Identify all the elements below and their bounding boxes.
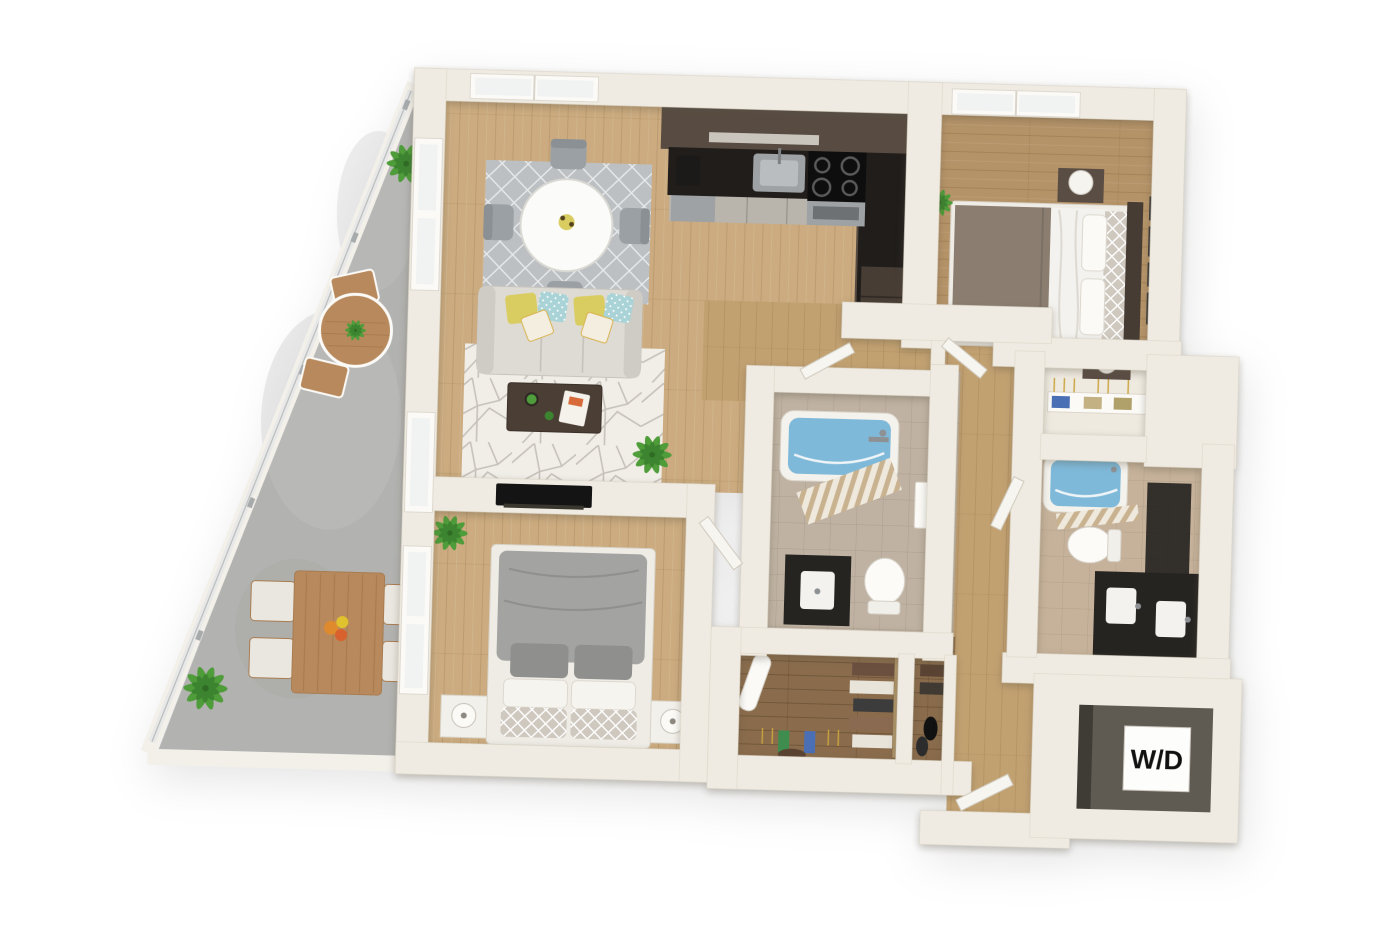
outdoor-chair	[250, 581, 295, 622]
sofa	[476, 286, 642, 379]
coffee-table	[507, 383, 602, 434]
toilet	[864, 558, 906, 615]
pillow	[571, 681, 636, 711]
dining-chair	[619, 208, 650, 245]
pillow	[500, 707, 567, 739]
wall-closet2-bath2	[1040, 434, 1147, 463]
folded-clothes	[1114, 398, 1132, 410]
dishwasher	[671, 195, 716, 222]
wall-corridor	[841, 302, 1052, 344]
vanity-sink	[783, 554, 851, 626]
pillow	[570, 708, 637, 740]
mirror	[1145, 483, 1192, 576]
window	[404, 412, 435, 513]
hanging-clothes	[848, 656, 897, 757]
wall-closet-divider	[896, 654, 915, 764]
wall-bathroom2-right	[1196, 444, 1235, 687]
coffee-maker	[676, 155, 701, 186]
toilet	[1067, 526, 1121, 563]
lamp	[1069, 170, 1094, 195]
bathtub	[1043, 454, 1129, 514]
pillow	[1081, 215, 1107, 272]
window	[952, 89, 1081, 118]
sink	[1155, 601, 1186, 638]
washer-dryer-text: W/D	[1130, 744, 1183, 775]
washer-dryer-closet: W/D	[1030, 673, 1242, 843]
wall-bathroom1-top	[772, 366, 943, 397]
pillow	[510, 643, 569, 679]
dining-chair	[483, 204, 514, 241]
dining-chair	[550, 139, 587, 170]
stove	[807, 151, 866, 203]
sink	[1106, 587, 1137, 624]
floor-plan: W/D	[146, 61, 1259, 853]
folded-clothes	[1052, 396, 1070, 408]
floor-plan-svg: W/D	[0, 0, 1400, 934]
wall-closet-bottom	[719, 755, 972, 796]
pillow	[503, 679, 568, 709]
window	[411, 138, 443, 291]
outdoor-chair	[249, 638, 294, 679]
window	[470, 73, 599, 102]
floor-plan-render: W/D	[0, 0, 1400, 934]
wall-closet-left	[707, 626, 742, 789]
pillow	[1080, 279, 1106, 336]
window	[399, 546, 431, 695]
folded-clothes	[1084, 397, 1102, 409]
nightstand	[440, 695, 487, 738]
wall-closet-top	[739, 627, 954, 659]
bed	[486, 544, 656, 749]
pillow	[574, 645, 633, 681]
